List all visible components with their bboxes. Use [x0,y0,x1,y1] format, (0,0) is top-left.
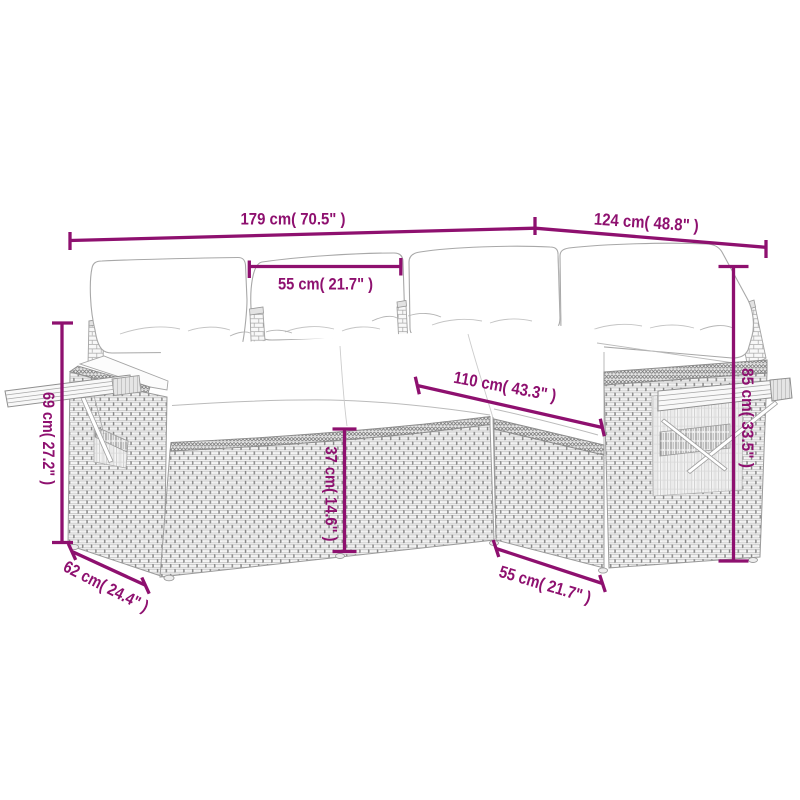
svg-text:69 cm( 27.2" ): 69 cm( 27.2" ) [39,392,58,485]
svg-text:179 cm( 70.5" ): 179 cm( 70.5" ) [241,210,346,229]
svg-text:55 cm( 21.7" ): 55 cm( 21.7" ) [278,275,373,294]
svg-text:37 cm( 14.6" ): 37 cm( 14.6" ) [322,447,341,542]
svg-text:85 cm( 33.5" ): 85 cm( 33.5" ) [738,368,757,468]
